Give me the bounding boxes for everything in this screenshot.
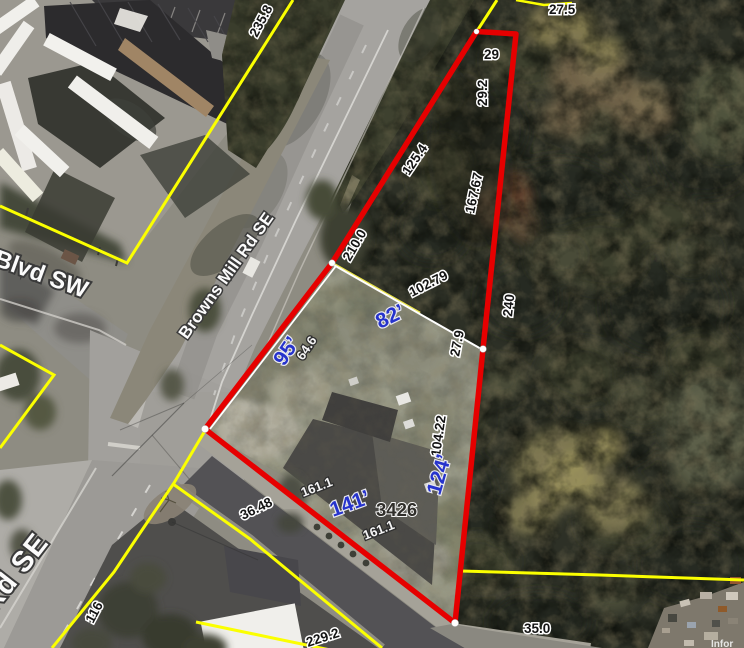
svg-text:29.2: 29.2 (475, 80, 490, 106)
svg-text:3426: 3426 (376, 499, 417, 520)
svg-text:Infor: Infor (711, 639, 733, 648)
svg-text:240: 240 (500, 293, 517, 317)
svg-text:27.5: 27.5 (549, 2, 576, 17)
svg-text:29: 29 (484, 47, 499, 62)
svg-text:35.0: 35.0 (524, 621, 550, 636)
